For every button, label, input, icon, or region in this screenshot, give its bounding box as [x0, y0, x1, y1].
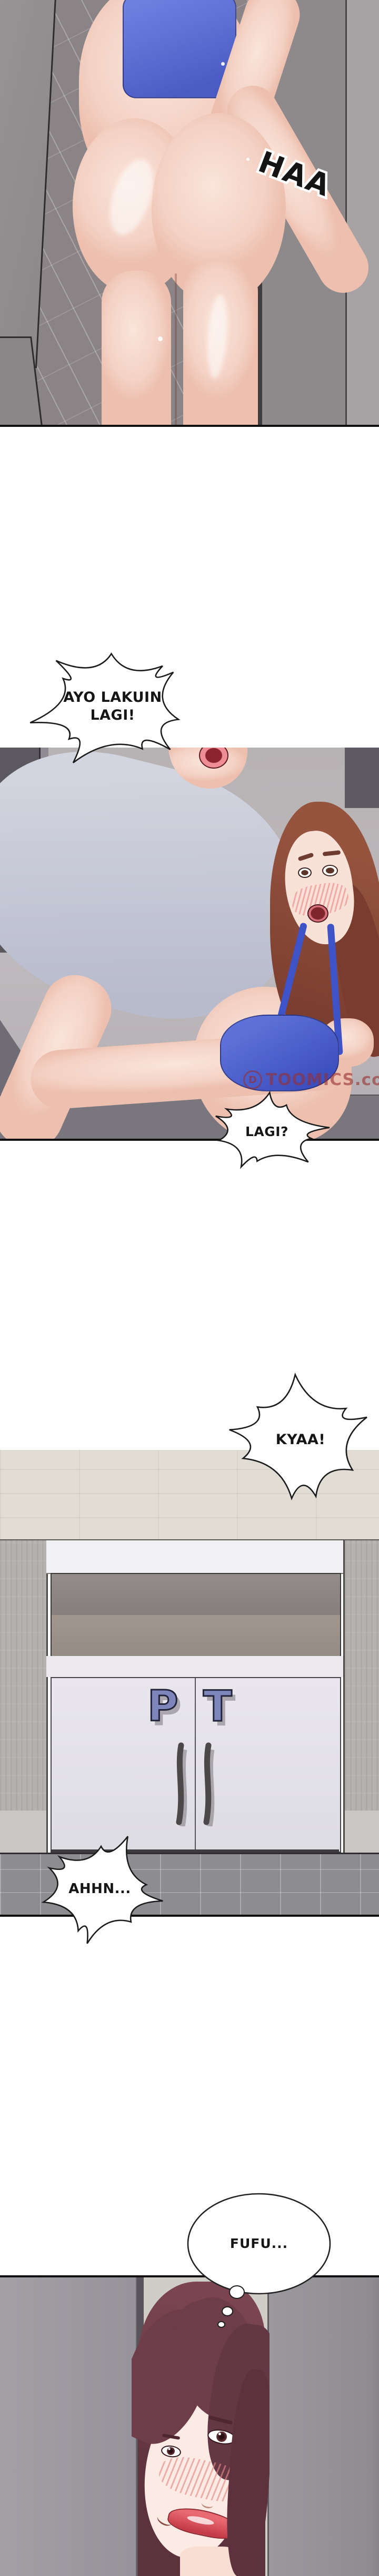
speech-bubble-text: AYO LAKUIN LAGI!	[49, 667, 175, 746]
double-doors: P T	[51, 1677, 341, 1853]
door-frame-strip	[46, 1656, 343, 1677]
woman-iris	[166, 2447, 175, 2456]
thought-bubble-text: FUFU...	[206, 2212, 312, 2275]
door-lintel	[46, 1539, 343, 1574]
door-panel-left	[0, 2277, 137, 2576]
pillar-right	[343, 1539, 379, 1812]
speech-bubble-lagi: LAGI?	[202, 1089, 332, 1174]
wall-right	[267, 2277, 379, 2576]
sfx-haa-text: HAA	[246, 148, 352, 217]
lip-highlight	[186, 2514, 214, 2527]
transom-band-upper	[51, 1573, 341, 1617]
watermark-text: TOOMICS.com	[266, 1070, 379, 1089]
speech-bubble-text: LAGI?	[220, 1106, 314, 1157]
speech-bubble-kyaa: KYAA!	[222, 1371, 379, 1509]
speech-bubble-text: AHHN...	[52, 1853, 148, 1925]
shower-wall-right-edge	[347, 0, 379, 425]
woman-iris	[216, 2430, 228, 2442]
svg-text:HAA: HAA	[254, 145, 336, 204]
woman-open-mouth	[307, 904, 328, 923]
thought-trail-circle	[229, 2285, 245, 2299]
panel-4-peeking-woman	[0, 2275, 379, 2576]
panel-1-shower-scene: HAA	[0, 0, 379, 427]
water-droplet	[221, 62, 225, 66]
speech-bubble-text: KYAA!	[244, 1398, 357, 1481]
thought-trail-circle	[217, 2321, 225, 2328]
comic-page: HAA AYO LAKUIN LAGI!	[0, 0, 379, 2576]
transom-band-lower	[51, 1615, 341, 1657]
watermark-logo-icon: D	[243, 1070, 262, 1089]
speech-bubble-ayo-lakuin: AYO LAKUIN LAGI!	[25, 640, 200, 773]
door-handles	[172, 1742, 222, 1826]
watermark: D TOOMICS.com	[243, 1069, 379, 1090]
water-droplet	[158, 336, 163, 341]
figure-leg-left	[102, 271, 171, 427]
figure-shading-line	[175, 273, 177, 426]
panel-2-floor-scene: D TOOMICS.com	[0, 748, 379, 1141]
figure-peeking-woman	[132, 2277, 270, 2576]
speech-bubble-ahhn: AHHN...	[33, 1828, 167, 1949]
sports-bra	[123, 0, 236, 98]
pillar-left	[0, 1539, 48, 1812]
woman-eye-left	[298, 867, 312, 878]
pillar-base-right	[343, 1811, 379, 1853]
woman-eye-right	[322, 865, 338, 876]
thought-bubble-fufu: FUFU...	[185, 2191, 333, 2296]
door-letter-t: T	[203, 1685, 232, 1727]
dark-object-top-right	[345, 748, 379, 808]
thought-trail-circle	[222, 2306, 233, 2316]
door-letter-p: P	[147, 1685, 178, 1727]
